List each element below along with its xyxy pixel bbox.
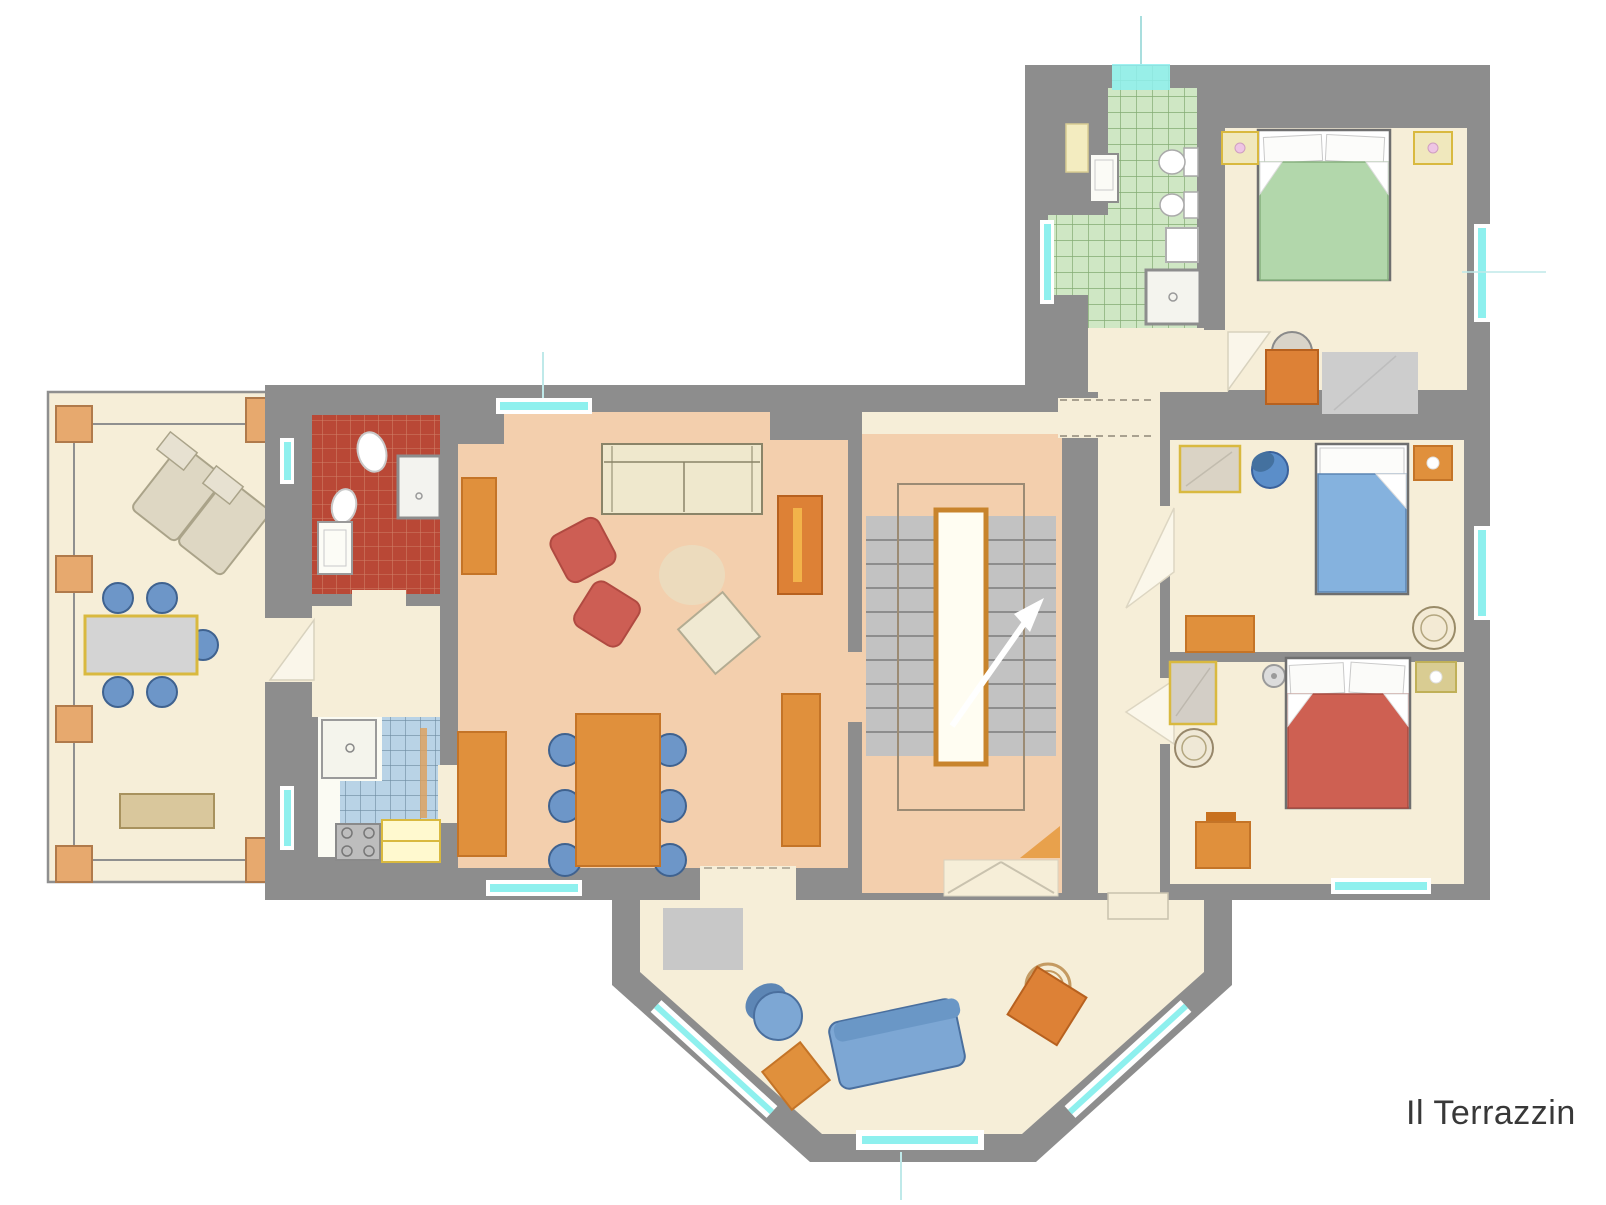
washer (1166, 228, 1198, 262)
terrace-pillar (56, 846, 92, 882)
wicker-basket (1413, 607, 1455, 649)
window-living-top (500, 402, 588, 410)
plan-title: Il Terrazzin (1406, 1094, 1606, 1133)
toilet-green-tank (1184, 148, 1198, 176)
window-bay-bottom (862, 1136, 978, 1144)
floor-plan: Il Terrazzin (0, 0, 1606, 1205)
dining-table (576, 714, 660, 866)
nightstand-lamp (1235, 143, 1245, 153)
sideboard-lower (458, 732, 506, 856)
nightstand-lamp (1428, 143, 1438, 153)
toilet-green (1159, 150, 1185, 174)
stair-hall-landing (862, 412, 1062, 434)
cabinet-right (782, 694, 820, 846)
window-living-bottom (490, 884, 578, 892)
floor-corridor (1098, 392, 1160, 893)
shower-red (398, 456, 440, 518)
bed-red-pillow (1289, 663, 1344, 696)
door-living-bay-opening (700, 866, 796, 902)
terrace-bench (120, 794, 214, 828)
dresser-orange (1186, 616, 1254, 652)
sideboard-upper (462, 478, 496, 574)
wall-stub-living-nw (458, 412, 504, 444)
bay-rug (663, 908, 743, 970)
bed-green-blanket (1260, 162, 1388, 280)
bed-red-pillow (1349, 662, 1405, 696)
bay-round-chair (754, 992, 802, 1040)
door-bathred-opening (352, 590, 406, 610)
terrace-pillar (56, 556, 92, 592)
bed-blue-pillow (1320, 448, 1404, 474)
bed-green-pillow (1263, 135, 1322, 164)
bath-green-shelf (1066, 124, 1088, 172)
terrace-dining-chair (103, 677, 133, 707)
desk-red-room (1196, 822, 1250, 868)
sink-green (1090, 154, 1118, 202)
terrace-dining-table (85, 616, 197, 674)
bed-red-blanket (1288, 694, 1408, 808)
window-bedblue (1478, 530, 1486, 616)
window-kitchen (284, 790, 291, 846)
terrace-dining-chair (103, 583, 133, 613)
bedroom-green-rug (1322, 352, 1418, 414)
window-bedred (1335, 882, 1427, 890)
corridor-step-landing (1108, 893, 1168, 919)
stairs-void (936, 510, 986, 764)
bed-green-pillow (1325, 135, 1384, 164)
terrace-dining-chair (147, 583, 177, 613)
nightstand-dot (1430, 671, 1442, 683)
floor-wing-hall (1088, 328, 1204, 392)
kitchen-sink (322, 720, 376, 778)
terrace-dining-chair (147, 677, 177, 707)
terrace-pillar (56, 706, 92, 742)
bidet-green-tank (1184, 192, 1198, 218)
terrace-pillar (56, 406, 92, 442)
door-stair-corridor-opening (1058, 398, 1102, 438)
floor-lamp-dot (1271, 673, 1277, 679)
wall-stub-living-ne (770, 412, 848, 440)
door-winghall-bedgreen-opening (1200, 330, 1228, 392)
cabinet-fireplace-stripe (793, 508, 802, 582)
living-rug (659, 545, 725, 605)
sofa (602, 444, 762, 514)
nightstand-dot (1427, 457, 1439, 469)
armchair-orange (1266, 350, 1318, 404)
door-stair-bay-french (944, 860, 1058, 896)
window-bathred (284, 442, 291, 480)
floor-entry-hall (312, 601, 440, 717)
skylight-bathgreen (1112, 64, 1170, 90)
window-bedgreen (1478, 228, 1486, 318)
window-bathgreen (1044, 224, 1051, 300)
wicker-chair (1175, 729, 1213, 767)
door-living-stair-opening (846, 652, 864, 722)
wall-bathred-right (440, 415, 458, 601)
shower-green (1146, 270, 1200, 324)
kitchen-threshold (420, 728, 427, 818)
bidet-green (1160, 194, 1184, 216)
floor-plan-svg (0, 0, 1606, 1205)
door-hall-living-opening (438, 765, 460, 823)
